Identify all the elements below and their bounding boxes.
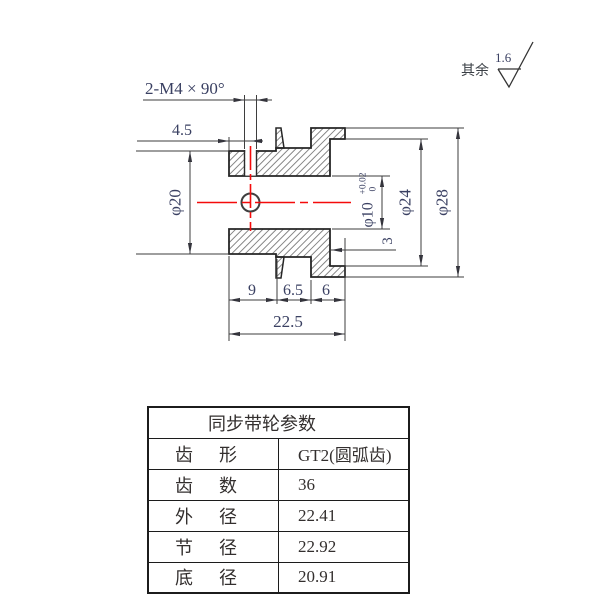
section-bottom-band (229, 229, 345, 277)
table-row: 底 径 20.91 (148, 562, 409, 593)
parameter-table: 同步带轮参数 齿 形 GT2(圆弧齿) 齿 数 36 外 径 22.41 节 径… (147, 406, 410, 593)
dim-4-5-label: 4.5 (172, 122, 192, 139)
table-header-row: 同步带轮参数 (148, 407, 409, 438)
dim-6-5-label: 6.5 (283, 282, 303, 299)
dim-depth-3-label: 3 (380, 237, 396, 245)
dim-phi10-group: φ10 +0.02 0 (359, 172, 379, 227)
dim-phi20-label: φ20 (166, 189, 185, 216)
dim-9-label: 9 (248, 282, 256, 299)
param-row-value: 22.92 (279, 531, 410, 562)
left-flange-top (276, 128, 284, 148)
param-row-label: 底 径 (148, 562, 279, 593)
table-row: 齿 数 36 (148, 469, 409, 500)
dim-phi10-tol-upper: +0.02 (359, 172, 369, 194)
param-row-value: 22.41 (279, 500, 410, 531)
param-row-value: 36 (279, 469, 410, 500)
table-row: 齿 形 GT2(圆弧齿) (148, 438, 409, 469)
engineering-drawing-canvas: 2-M4 × 90° 4.5 φ20 φ10 +0.02 0 φ24 φ28 3… (0, 0, 600, 600)
dim-6-label: 6 (322, 282, 330, 299)
param-row-label: 齿 形 (148, 438, 279, 469)
dim-phi24-label: φ24 (396, 189, 415, 216)
param-row-value: GT2(圆弧齿) (279, 438, 410, 469)
dim-phi10-label: φ10 (360, 202, 377, 227)
param-row-label: 外 径 (148, 500, 279, 531)
param-row-label: 节 径 (148, 531, 279, 562)
dim-phi28-label: φ28 (433, 189, 452, 216)
table-row: 节 径 22.92 (148, 531, 409, 562)
param-row-value: 20.91 (279, 562, 410, 593)
table-row: 外 径 22.41 (148, 500, 409, 531)
table-title: 同步带轮参数 (148, 407, 409, 438)
surface-roughness-note: 其余 1.6 (461, 42, 533, 87)
surface-note-text: 其余 (461, 62, 489, 79)
dim-phi10-tol-lower: 0 (369, 187, 379, 192)
dim-22-5-label: 22.5 (273, 312, 303, 331)
param-row-label: 齿 数 (148, 469, 279, 500)
dim-m4-label: 2-M4 × 90° (145, 79, 225, 98)
surface-roughness-value: 1.6 (495, 50, 512, 65)
